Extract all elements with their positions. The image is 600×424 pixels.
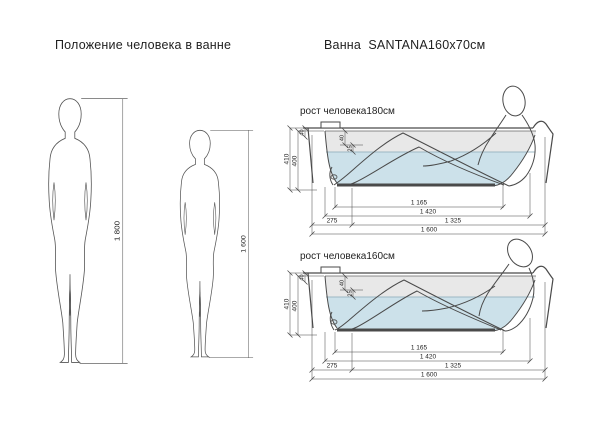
diagram-canvas: Положение человека в ванне Ванна SANTANA… xyxy=(0,0,600,424)
dim-total-length: 1 600 xyxy=(421,372,438,379)
figure-180-drawing: 1 800 xyxy=(30,96,134,366)
dim-mid-length: 1 420 xyxy=(420,209,437,216)
dim-rim-to-water-a: 40 xyxy=(340,280,346,286)
bath-water xyxy=(323,131,538,186)
dim-rim-to-water-a: 40 xyxy=(340,135,346,141)
dim-total-height: 410 xyxy=(284,153,291,164)
dim-rim-to-water-b: 25 xyxy=(348,290,354,296)
dim-rim-to-water-b: 25 xyxy=(348,145,354,151)
dim-right-length: 1 325 xyxy=(445,363,462,370)
dim-left-offset: 275 xyxy=(327,363,338,370)
right-section-title: Ванна SANTANA160x70см xyxy=(324,38,485,52)
height-label-180: 1 800 xyxy=(113,221,121,241)
dim-total-height: 410 xyxy=(284,298,291,309)
left-section-title: Положение человека в ванне xyxy=(55,38,231,52)
bath-water xyxy=(323,276,538,331)
dim-bottom-length: 1 165 xyxy=(411,200,428,207)
dim-rim-height: 40 xyxy=(300,274,306,280)
dim-inner-depth: 400 xyxy=(292,155,299,166)
figure-160-drawing: 1 600 xyxy=(163,128,259,360)
dim-mid-length: 1 420 xyxy=(420,354,437,361)
rim-ledge xyxy=(321,122,340,128)
person-silhouette xyxy=(49,99,92,363)
bathtub-caption-160: рост человека160см xyxy=(300,251,395,262)
bathtub-caption-180: рост человека180см xyxy=(300,106,395,117)
rim-ledge xyxy=(321,267,340,273)
height-label-160: 1 600 xyxy=(241,235,248,253)
bathtub-diagram-160: 1 165 1 420 275 1 325 1 600 410 400 40 4… xyxy=(283,218,563,388)
person-silhouette xyxy=(180,130,219,357)
dim-bottom-length: 1 165 xyxy=(411,345,428,352)
dim-inner-depth: 400 xyxy=(292,300,299,311)
dim-rim-height: 40 xyxy=(300,129,306,135)
